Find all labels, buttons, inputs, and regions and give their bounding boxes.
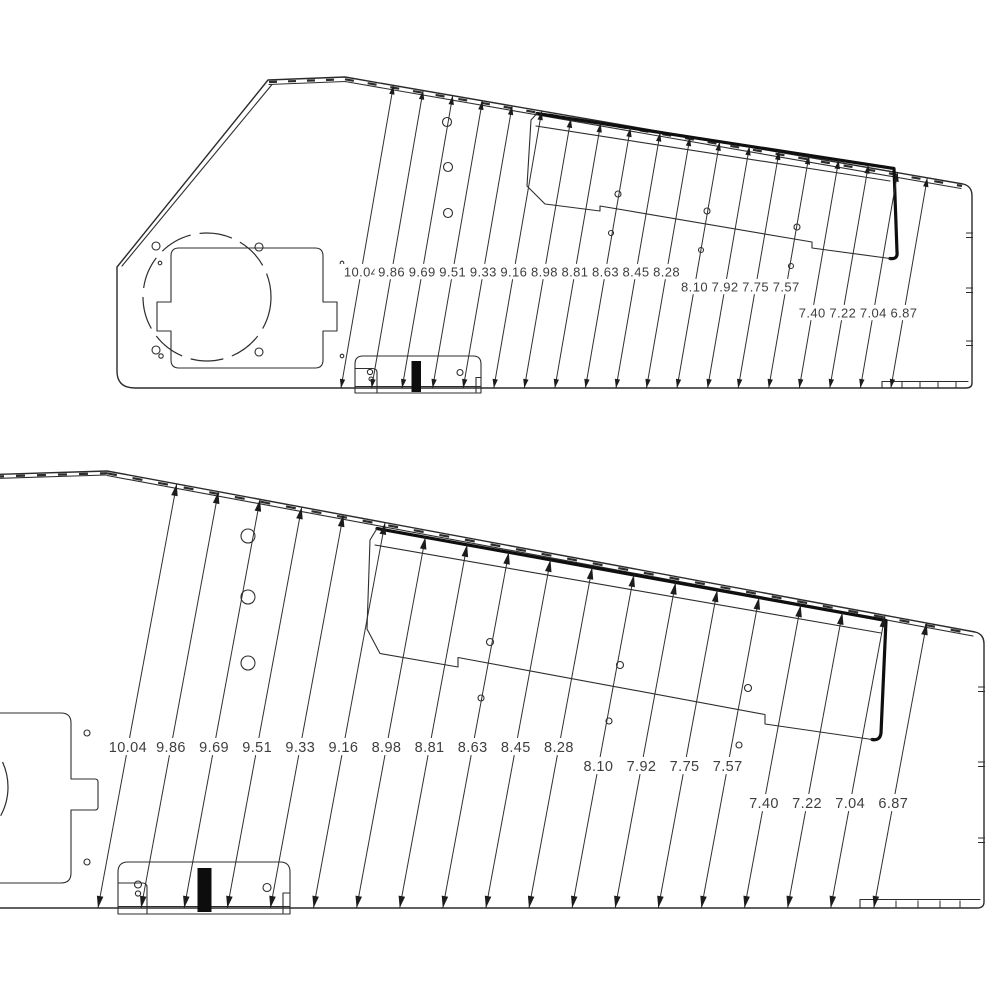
panel-holes: [241, 529, 752, 748]
speaker-circle-partial: [0, 727, 8, 847]
dimension-label: 7.22: [792, 796, 822, 812]
dimension-label: 8.63: [458, 740, 488, 756]
arrowhead: [837, 613, 844, 625]
dimension-label: 9.69: [199, 740, 229, 756]
arrowhead: [743, 896, 750, 908]
dimension-arrow: [555, 123, 601, 388]
panel-outline: [117, 77, 972, 388]
dimension-label: 8.98: [372, 740, 402, 756]
display-cutout-thin-edge: [367, 529, 872, 740]
dimension-label: 8.28: [544, 740, 574, 756]
dimension-arrow: [486, 560, 551, 908]
panel-outline: [0, 471, 984, 908]
dimension-arrow: [708, 146, 750, 388]
dimension-label: 9.16: [500, 265, 527, 280]
arrowhead: [712, 590, 718, 602]
arrowhead: [545, 560, 552, 572]
dimension-arrow: [615, 583, 675, 909]
dimension-arrow: [400, 545, 467, 908]
arrowhead: [312, 896, 319, 908]
arrowhead: [614, 896, 621, 908]
arrowhead: [798, 379, 803, 388]
dimension-label: 6.87: [890, 306, 917, 321]
dimension-label: 10.04: [344, 265, 379, 280]
arrowhead: [645, 379, 650, 388]
dimension-arrow: [738, 151, 779, 388]
dimension-arrow: [443, 552, 509, 908]
dimension-label: 10.04: [109, 740, 147, 756]
arrowhead: [587, 567, 593, 579]
dimension-label: 9.51: [242, 740, 272, 756]
dimension-label: 9.86: [156, 740, 186, 756]
dimension-label: 7.57: [773, 280, 800, 295]
dimension-label: 9.33: [470, 265, 497, 280]
dimension-label: 8.98: [531, 265, 558, 280]
arrowhead: [584, 379, 589, 388]
arrowhead: [171, 484, 178, 496]
screw-holes: [152, 242, 344, 358]
dimension-label: 8.10: [583, 759, 613, 775]
dimension-labels: 10.049.869.699.519.339.168.988.818.638.4…: [340, 264, 921, 321]
dimension-arrow: [402, 96, 453, 388]
panel-holes: [443, 118, 801, 269]
dimension-arrow: [494, 111, 542, 388]
arrowhead: [830, 896, 837, 908]
dimension-arrow: [227, 507, 301, 908]
speaker-circle: [143, 233, 271, 361]
detail-view: 10.049.869.699.519.339.168.988.818.638.4…: [0, 471, 985, 914]
dimension-label: 7.57: [713, 759, 743, 775]
dimension-label: 9.86: [378, 265, 405, 280]
dimension-label: 7.04: [860, 306, 887, 321]
display-cutout-inner-line: [375, 545, 881, 633]
arrowhead: [829, 379, 834, 388]
arrowhead: [528, 896, 535, 908]
slope-flange-hatch: [107, 473, 974, 634]
dimension-labels: 10.049.869.699.519.339.168.988.818.638.4…: [105, 738, 912, 812]
dimension-label: 6.87: [878, 796, 908, 812]
arrowhead: [296, 507, 303, 519]
top-view: 10.049.869.699.519.339.168.988.818.638.4…: [117, 77, 973, 393]
arrowhead: [485, 896, 492, 908]
arrowhead: [859, 379, 864, 388]
arrowhead: [356, 896, 363, 908]
arrowhead: [503, 552, 510, 564]
dimension-label: 9.16: [328, 740, 358, 756]
technical-drawing-canvas: 10.049.869.699.519.339.168.988.818.638.4…: [0, 0, 1000, 1000]
dimension-label: 7.92: [712, 280, 739, 295]
arrowhead: [462, 545, 469, 557]
speaker-bracket-cutout: [157, 248, 337, 368]
arrowhead: [795, 605, 802, 617]
arrowhead: [754, 598, 760, 610]
arrowhead: [97, 896, 104, 908]
dimension-arrow: [874, 623, 927, 908]
dimension-label: 7.92: [627, 759, 657, 775]
dimension-label: 7.04: [835, 796, 865, 812]
arrowhead: [787, 896, 794, 908]
dimension-arrow: [524, 119, 571, 388]
panel-inner-edges: [0, 475, 980, 908]
arrowhead: [340, 379, 345, 388]
dimension-arrow: [314, 523, 386, 908]
dimension-label: 8.28: [653, 265, 680, 280]
dimension-label: 8.63: [592, 265, 619, 280]
display-cutout-thick-edge: [537, 114, 897, 259]
dimension-arrow: [769, 155, 809, 388]
connector-key: [412, 361, 422, 392]
arrowhead: [629, 575, 635, 587]
dimension-label: 8.45: [501, 740, 531, 756]
arrowhead: [399, 896, 406, 908]
dimension-arrow: [658, 590, 717, 908]
dimension-arrow: [357, 537, 426, 908]
dimension-arrow: [529, 567, 592, 908]
dimension-label: 7.22: [829, 306, 856, 321]
arrowhead: [615, 379, 620, 388]
dimension-arrow: [788, 613, 843, 908]
arrowhead: [449, 96, 454, 105]
dimension-arrow: [98, 484, 177, 908]
arrowhead: [554, 379, 559, 388]
arrowhead: [670, 583, 676, 595]
dimension-label: 7.75: [670, 759, 700, 775]
arrowhead: [442, 896, 449, 908]
arrowhead: [768, 379, 773, 388]
arrowhead: [921, 623, 928, 635]
arrowhead: [571, 896, 578, 908]
technical-drawing-page: 10.049.869.699.519.339.168.988.818.638.4…: [0, 0, 1000, 1000]
arrowhead: [700, 896, 707, 908]
dimension-arrow: [745, 605, 801, 908]
dimension-arrow: [830, 165, 869, 388]
dimension-label: 7.40: [799, 306, 826, 321]
arrowhead: [890, 379, 895, 388]
dimension-label: 9.33: [285, 740, 315, 756]
arrowhead: [523, 379, 528, 388]
dimension-label: 8.81: [415, 740, 445, 756]
dimension-label: 9.51: [439, 265, 466, 280]
dimension-label: 7.75: [742, 280, 769, 295]
arrowhead: [657, 896, 664, 908]
dimension-arrow: [799, 160, 838, 388]
arrowhead: [737, 379, 742, 388]
dimension-arrow: [270, 515, 343, 908]
dimension-arrows: [97, 484, 928, 908]
arrowhead: [873, 896, 880, 908]
connector-key: [198, 868, 212, 912]
dimension-arrow: [463, 106, 512, 388]
dimension-label: 8.45: [623, 265, 650, 280]
display-cutout-thick-edge: [377, 529, 886, 740]
arrowhead: [493, 379, 498, 388]
dimension-label: 8.81: [561, 265, 588, 280]
dimension-arrow: [433, 101, 483, 388]
connector-bracket: [118, 862, 290, 914]
dimension-arrow: [831, 615, 885, 908]
dimension-arrow: [372, 91, 424, 389]
dimension-arrow: [585, 128, 630, 388]
dimension-arrow: [860, 173, 897, 388]
arrowhead: [255, 499, 262, 511]
dimension-arrow: [184, 499, 260, 908]
arrowhead: [707, 379, 712, 388]
dimension-arrow: [141, 492, 218, 908]
screw-holes: [84, 730, 90, 865]
dimension-label: 7.40: [749, 796, 779, 812]
dimension-arrow: [341, 85, 393, 388]
arrowhead: [676, 379, 681, 388]
dimension-arrow: [701, 598, 759, 909]
speaker-bracket-cutout-partial: [0, 713, 98, 883]
dimension-arrows: [340, 85, 929, 388]
dimension-label: 8.10: [681, 280, 708, 295]
arrowhead: [420, 537, 427, 549]
dimension-label: 9.69: [409, 265, 436, 280]
